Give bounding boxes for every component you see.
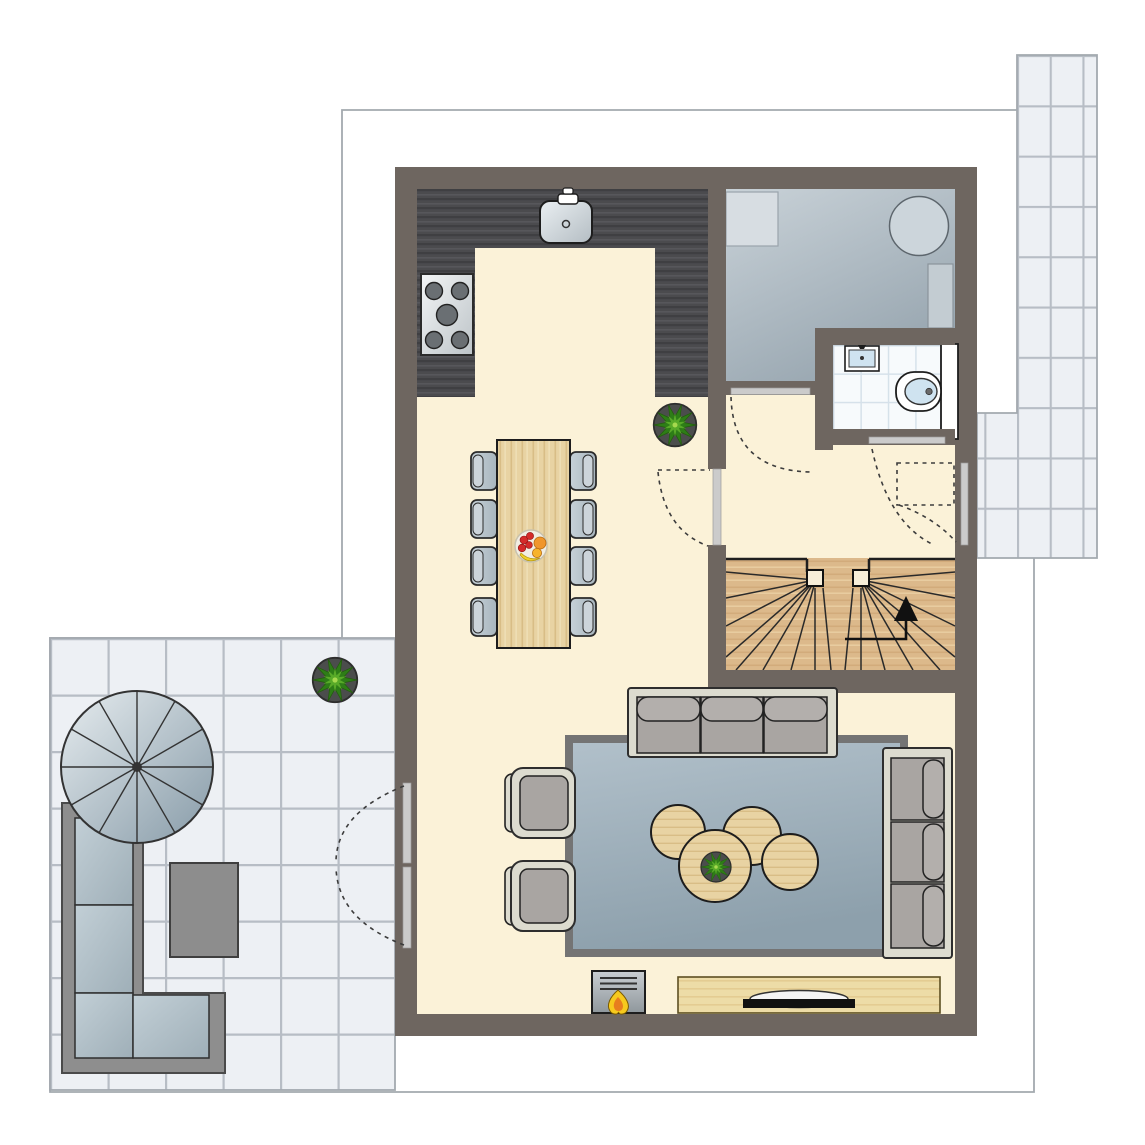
hall-door-bar	[713, 469, 721, 545]
entry-window-bar	[961, 463, 968, 545]
armchair-2	[505, 861, 575, 931]
bathroom-door-bar	[869, 437, 945, 444]
outdoor-table	[170, 863, 238, 957]
sofa-top	[628, 688, 837, 757]
washbasin-icon	[845, 345, 879, 371]
floor-plan-canvas	[0, 0, 1145, 1145]
toilet-icon	[896, 372, 941, 411]
utility-door-bar	[731, 388, 810, 395]
staircase	[726, 558, 955, 670]
cooktop	[421, 274, 473, 355]
plant-terrace	[313, 658, 357, 702]
bathroom	[833, 344, 958, 439]
bathroom-window	[941, 344, 958, 439]
spiral-staircase	[61, 691, 213, 843]
french-door-lower	[403, 867, 411, 948]
plant-living-room	[701, 852, 731, 882]
armchair-1	[505, 768, 575, 838]
french-door-upper	[403, 783, 411, 863]
plant-kitchen	[654, 404, 697, 447]
fruit-bowl-icon	[515, 530, 547, 562]
tv-icon	[743, 999, 855, 1008]
tv-lowboard	[678, 977, 940, 1013]
fireplace-stove	[592, 971, 645, 1014]
sofa-right	[883, 748, 952, 958]
floor-plan-drawing	[0, 0, 1145, 1145]
